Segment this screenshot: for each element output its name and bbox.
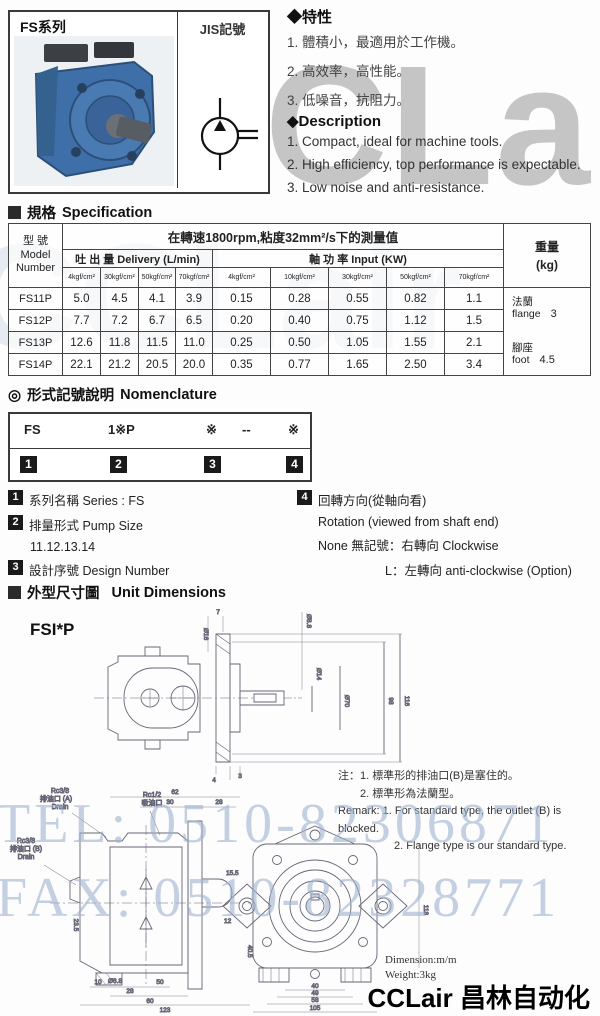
weight-header-zh: 重量 xyxy=(504,238,590,256)
pump-sizes: 11.12.13.14 xyxy=(30,540,288,554)
port-b-label: 排油口 (B) xyxy=(10,844,42,853)
rotation-ccw: L：左轉向 anti-clockwise (Option) xyxy=(385,560,597,579)
value-cell: 0.75 xyxy=(329,310,387,332)
weight-foot: 腳座 foot4.5 xyxy=(504,340,590,370)
weight-flange-value: 3 xyxy=(551,308,557,320)
input-group-header: 軸 功 率 Input (KW) xyxy=(213,250,504,268)
model-header: 型 號 Model Number xyxy=(9,224,63,288)
code-part: ※ xyxy=(206,422,217,438)
code-part: -- xyxy=(242,422,251,437)
pressure-col: 70kgf/cm² xyxy=(176,268,213,288)
code-position-1: 1 xyxy=(20,456,37,473)
item-badge: 1 xyxy=(8,490,23,505)
weight-header-unit: (kg) xyxy=(504,256,590,274)
dim-6-8: Ø6.8 xyxy=(108,978,122,985)
dim-50: 50 xyxy=(156,979,164,986)
remark-en-2: 2. Flange type is our standard type. xyxy=(394,838,600,856)
dim-10: 10 xyxy=(94,979,102,986)
model-header-en1: Model xyxy=(9,249,62,263)
rotation-en: Rotation (viewed from shaft end) xyxy=(318,515,597,529)
item-text: 系列名稱 Series : FS xyxy=(29,490,144,509)
value-cell: 0.50 xyxy=(271,332,329,354)
dim-105: 105 xyxy=(310,1005,321,1012)
value-cell: 6.7 xyxy=(139,310,176,332)
port-a-drain: Drain xyxy=(52,804,69,811)
weight-cell: 法蘭 flange3 腳座 foot4.5 xyxy=(504,288,591,376)
value-cell: 7.7 xyxy=(63,310,101,332)
notes-block: 注：1. 標準形的排油口(B)是塞住的。 2. 標準形為法蘭型。 Remark:… xyxy=(338,768,600,856)
value-cell: 1.5 xyxy=(445,310,504,332)
dim-8-8: Ø8.8 xyxy=(305,614,312,628)
pressure-col: 10kgf/cm² xyxy=(271,268,329,288)
dim-62: 62 xyxy=(171,789,179,796)
list-item: 1 系列名稱 Series : FS xyxy=(8,490,288,509)
description-item: 2. High efficiency, top performance is e… xyxy=(287,157,581,172)
side-view-drawing: 116 98 Ø70 Ø14 Ø8.8 Ø16 7 4 3 xyxy=(88,602,418,794)
square-bullet-icon xyxy=(8,586,21,599)
spec-heading-en: Specification xyxy=(62,205,152,221)
code-position-2: 2 xyxy=(110,456,127,473)
nomenclature-items-right: 4 回轉方向(從軸向看) Rotation (viewed from shaft… xyxy=(297,490,597,585)
dim-14: Ø14 xyxy=(315,668,322,681)
features-title: ◆特性 xyxy=(287,6,464,27)
port-a-size: Rc3/8 xyxy=(51,788,69,795)
value-cell: 1.12 xyxy=(387,310,445,332)
dim-3: 3 xyxy=(238,773,242,780)
value-cell: 0.35 xyxy=(213,354,271,376)
item-badge: 2 xyxy=(8,515,23,530)
dim-118: 118 xyxy=(422,905,429,916)
value-cell: 11.8 xyxy=(101,332,139,354)
suction-size: Rc1/2 xyxy=(143,792,161,799)
code-part: FS xyxy=(24,422,41,437)
feature-item: 2. 高效率，高性能。 xyxy=(287,60,464,80)
value-cell: 0.25 xyxy=(213,332,271,354)
value-cell: 6.5 xyxy=(176,310,213,332)
table-row: FS14P 22.1 21.2 20.5 20.0 0.35 0.77 1.65… xyxy=(9,354,591,376)
code-position-4: 4 xyxy=(286,456,303,473)
pressure-col: 4kgf/cm² xyxy=(213,268,271,288)
dim-70: Ø70 xyxy=(343,695,350,708)
spec-heading-zh: 規格 xyxy=(27,202,56,223)
value-cell: 20.5 xyxy=(139,354,176,376)
weight-flange: 法蘭 flange3 xyxy=(504,294,590,324)
value-cell: 1.1 xyxy=(445,288,504,310)
value-cell: 1.55 xyxy=(387,332,445,354)
value-cell: 1.65 xyxy=(329,354,387,376)
model-header-zh: 型 號 xyxy=(9,235,62,249)
item-text: 排量形式 Pump Size xyxy=(29,515,143,534)
value-cell: 21.2 xyxy=(101,354,139,376)
port-b-drain: Drain xyxy=(18,854,35,861)
nomenclature-heading-en: Nomenclature xyxy=(120,387,217,403)
product-box: FS系列 JIS記號 xyxy=(8,10,270,194)
dimension-unit: Dimension:m/m xyxy=(385,953,457,968)
dim-30: 30 xyxy=(166,799,174,806)
condition-header: 在轉速1800rpm,粘度32mm²/s下的測量值 xyxy=(63,224,504,250)
value-cell: 4.1 xyxy=(139,288,176,310)
nomenclature-code-row xyxy=(10,414,310,449)
port-a-label: 排油口 (A) xyxy=(40,794,72,803)
value-cell: 0.20 xyxy=(213,310,271,332)
port-b-size: Rc3/8 xyxy=(17,838,35,845)
nomenclature-box: FS 1※P ※ -- ※ 1 2 3 4 xyxy=(8,412,312,482)
jis-pump-symbol-icon xyxy=(190,94,260,174)
description-item: 3. Low noise and anti-resistance. xyxy=(287,180,581,195)
dim-123: 123 xyxy=(160,1007,171,1014)
model-cell: FS14P xyxy=(9,354,63,376)
weight-flange-zh: 法蘭 xyxy=(512,296,590,309)
value-cell: 0.28 xyxy=(271,288,329,310)
value-cell: 11.0 xyxy=(176,332,213,354)
dim-16: Ø16 xyxy=(202,628,209,641)
feature-item: 3. 低噪音，抗阻力。 xyxy=(287,89,464,109)
list-item: 3 設計序號 Design Number xyxy=(8,560,288,579)
description-section: ◆Description 1. Compact, ideal for machi… xyxy=(287,112,581,203)
value-cell: 3.4 xyxy=(445,354,504,376)
item-text: 設計序號 Design Number xyxy=(29,560,169,579)
brand-footer: CCLair 昌林自动化 xyxy=(368,978,590,1015)
dim-116: 116 xyxy=(403,696,410,707)
code-position-3: 3 xyxy=(204,456,221,473)
table-row: FS12P 7.7 7.2 6.7 6.5 0.20 0.40 0.75 1.1… xyxy=(9,310,591,332)
pressure-col: 70kgf/cm² xyxy=(445,268,504,288)
model-cell: FS12P xyxy=(9,310,63,332)
model-header-en2: Number xyxy=(9,262,62,276)
pressure-col: 30kgf/cm² xyxy=(101,268,139,288)
value-cell: 2.50 xyxy=(387,354,445,376)
unit-dimensions-heading-en: Unit Dimensions xyxy=(112,585,226,601)
value-cell: 0.15 xyxy=(213,288,271,310)
dim-23-5: 23.5 xyxy=(72,919,79,932)
jis-label: JIS記號 xyxy=(178,19,267,38)
value-cell: 0.55 xyxy=(329,288,387,310)
pressure-col: 50kgf/cm² xyxy=(387,268,445,288)
value-cell: 4.5 xyxy=(101,288,139,310)
pressure-col: 30kgf/cm² xyxy=(329,268,387,288)
code-part: 1※P xyxy=(108,422,135,438)
nomenclature-heading: ◎ 形式記號說明 Nomenclature xyxy=(8,384,217,405)
item-text: 回轉方向(從軸向看) xyxy=(318,490,426,509)
note-zh-1: 注：1. 標準形的排油口(B)是塞住的。 xyxy=(338,768,600,786)
note-zh-2: 2. 標準形為法蘭型。 xyxy=(360,786,600,804)
value-cell: 7.2 xyxy=(101,310,139,332)
spec-table: 型 號 Model Number 在轉速1800rpm,粘度32mm²/s下的測… xyxy=(8,223,591,376)
value-cell: 12.6 xyxy=(63,332,101,354)
jis-cell: JIS記號 xyxy=(177,12,267,188)
unit-dimensions-heading: 外型尺寸圖 Unit Dimensions xyxy=(8,582,226,603)
dim-58: 58 xyxy=(311,997,319,1004)
weight-foot-value: 4.5 xyxy=(540,354,555,366)
item-badge: 4 xyxy=(297,490,312,505)
unit-dimensions-heading-zh: 外型尺寸圖 xyxy=(27,582,100,603)
features-section: ◆特性 1. 體積小，最適用於工作機。 2. 高效率，高性能。 3. 低噪音，抗… xyxy=(287,6,464,118)
feature-item: 1. 體積小，最適用於工作機。 xyxy=(287,31,464,51)
code-part: ※ xyxy=(288,422,299,438)
circle-bullet-icon: ◎ xyxy=(8,386,21,404)
table-row: FS13P 12.6 11.8 11.5 11.0 0.25 0.50 1.05… xyxy=(9,332,591,354)
pump-photo xyxy=(14,36,174,186)
dim-4: 4 xyxy=(212,777,216,784)
dim-28b: 28 xyxy=(126,988,134,995)
item-badge: 3 xyxy=(8,560,23,575)
value-cell: 2.1 xyxy=(445,332,504,354)
rotation-cw: None 無記號：右轉向 Clockwise xyxy=(318,535,597,554)
description-item: 1. Compact, ideal for machine tools. xyxy=(287,134,581,149)
list-item: 2 排量形式 Pump Size xyxy=(8,515,288,534)
value-cell: 1.05 xyxy=(329,332,387,354)
delivery-group-header: 吐 出 量 Delivery (L/min) xyxy=(63,250,213,268)
value-cell: 3.9 xyxy=(176,288,213,310)
list-item: 4 回轉方向(從軸向看) xyxy=(297,490,597,509)
nomenclature-heading-zh: 形式記號說明 xyxy=(27,384,114,405)
drawing-model-label: FSI*P xyxy=(30,620,74,640)
dim-40: 40 xyxy=(311,983,319,990)
value-cell: 22.1 xyxy=(63,354,101,376)
weight-flange-en: flange xyxy=(512,308,541,320)
model-cell: FS11P xyxy=(9,288,63,310)
value-cell: 11.5 xyxy=(139,332,176,354)
dim-7: 7 xyxy=(216,609,220,616)
table-row: FS11P 5.0 4.5 4.1 3.9 0.15 0.28 0.55 0.8… xyxy=(9,288,591,310)
pressure-col: 50kgf/cm² xyxy=(139,268,176,288)
model-cell: FS13P xyxy=(9,332,63,354)
weight-foot-zh: 腳座 xyxy=(512,342,590,355)
value-cell: 0.77 xyxy=(271,354,329,376)
nomenclature-items-left: 1 系列名稱 Series : FS 2 排量形式 Pump Size 11.1… xyxy=(8,490,288,585)
value-cell: 0.82 xyxy=(387,288,445,310)
square-bullet-icon xyxy=(8,206,21,219)
spec-heading: 規格 Specification xyxy=(8,202,152,223)
dim-60: 60 xyxy=(146,998,154,1005)
dim-28: 28 xyxy=(215,799,223,806)
weight-header: 重量 (kg) xyxy=(504,224,591,288)
description-title: ◆Description xyxy=(287,112,581,130)
dim-49: 49 xyxy=(311,990,319,997)
series-label: FS系列 xyxy=(20,17,66,37)
suction-label: 吸油口 xyxy=(142,798,163,807)
value-cell: 5.0 xyxy=(63,288,101,310)
remark-en-1: Remark: 1. For standard type, the outlet… xyxy=(338,803,600,838)
weight-foot-en: foot xyxy=(512,354,530,366)
dim-98: 98 xyxy=(387,697,394,705)
pressure-col: 4kgf/cm² xyxy=(63,268,101,288)
value-cell: 20.0 xyxy=(176,354,213,376)
value-cell: 0.40 xyxy=(271,310,329,332)
